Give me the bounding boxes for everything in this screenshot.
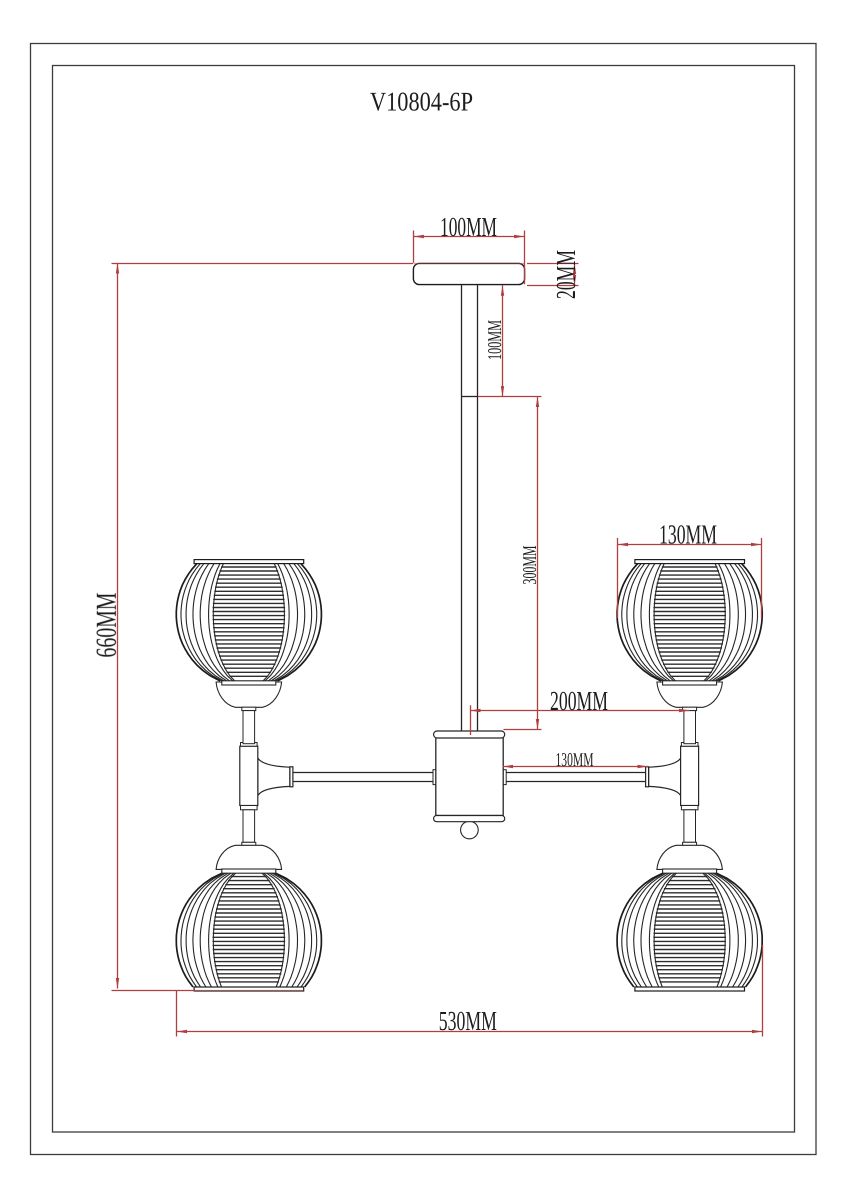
svg-text:130MM: 130MM <box>659 519 717 550</box>
svg-text:200MM: 200MM <box>550 685 608 716</box>
svg-text:100MM: 100MM <box>440 211 497 242</box>
svg-text:300MM: 300MM <box>520 546 541 585</box>
svg-text:130MM: 130MM <box>556 750 594 771</box>
svg-text:V10804-6P: V10804-6P <box>370 87 473 117</box>
svg-text:20MM: 20MM <box>550 250 581 299</box>
svg-text:660MM: 660MM <box>91 593 123 658</box>
svg-text:530MM: 530MM <box>439 1005 497 1036</box>
svg-text:100MM: 100MM <box>485 320 506 360</box>
